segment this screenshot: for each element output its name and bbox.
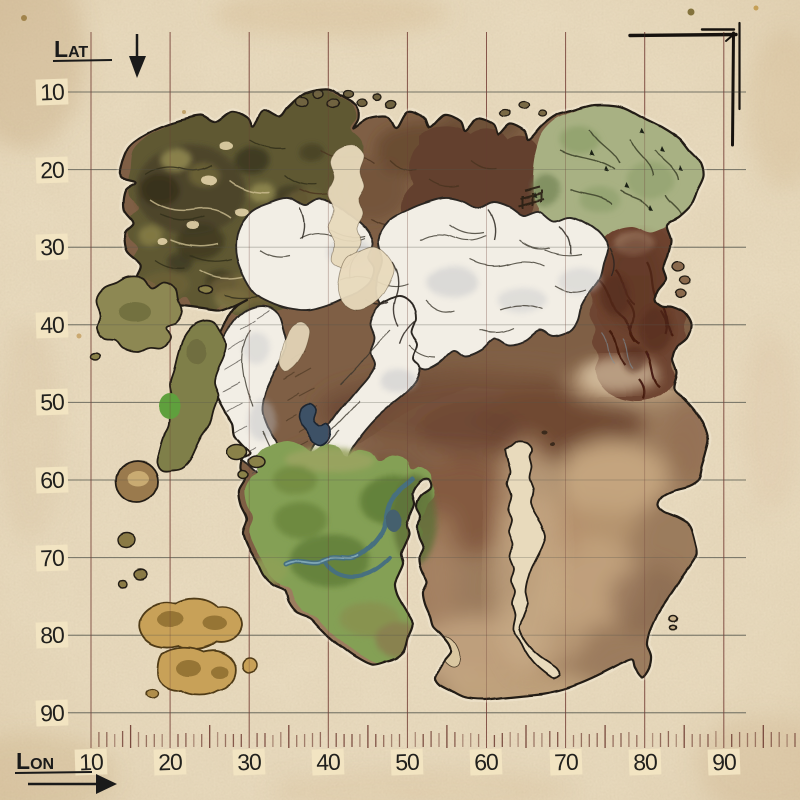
svg-text:70: 70 — [554, 749, 579, 776]
svg-text:60: 60 — [474, 749, 499, 776]
svg-text:30: 30 — [237, 749, 262, 776]
svg-text:80: 80 — [40, 622, 65, 649]
svg-text:90: 90 — [712, 749, 737, 776]
svg-text:60: 60 — [40, 467, 65, 494]
svg-text:10: 10 — [40, 79, 65, 106]
svg-text:40: 40 — [316, 749, 341, 776]
svg-text:50: 50 — [40, 389, 65, 416]
svg-text:50: 50 — [395, 749, 420, 776]
svg-text:20: 20 — [40, 157, 65, 184]
svg-text:20: 20 — [158, 749, 183, 776]
svg-text:80: 80 — [633, 749, 658, 776]
svg-text:70: 70 — [40, 545, 65, 572]
svg-text:90: 90 — [40, 700, 65, 727]
svg-text:30: 30 — [40, 234, 65, 261]
svg-text:40: 40 — [40, 312, 65, 339]
